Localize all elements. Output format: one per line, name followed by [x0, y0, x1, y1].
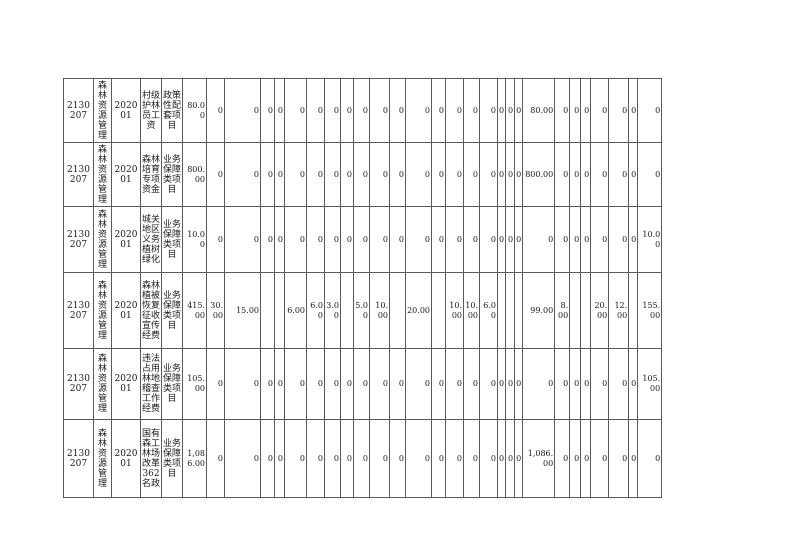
cell-value: 0: [432, 349, 446, 420]
cell-value: 0: [591, 349, 609, 420]
table-row: 2130207 森林资源管理 202001 森林植被恢复征收宣传经费 业务保障类…: [64, 273, 662, 349]
cell-project-name: 森林培育专项资金: [141, 143, 162, 207]
cell-value: 10.00: [183, 207, 207, 273]
cell-value: 3.00: [325, 273, 341, 349]
cell-value: 0: [464, 207, 480, 273]
cell-value: 6.00: [307, 273, 325, 349]
cell-value: 0: [591, 420, 609, 498]
cell-value: 0: [480, 207, 498, 273]
cell-value: 105.00: [638, 349, 662, 420]
cell-value: 0: [629, 420, 638, 498]
cell-value: 0: [581, 143, 591, 207]
cell-value: 0: [285, 207, 307, 273]
cell-value: 0: [341, 420, 354, 498]
cell-value: [261, 273, 275, 349]
cell-project-type: 业务保障类项目: [162, 349, 183, 420]
cell-value: 0: [261, 349, 275, 420]
cell-value: 0: [570, 79, 581, 143]
cell-value: [515, 273, 523, 349]
cell-value: 0: [555, 207, 570, 273]
cell-value: 0: [406, 420, 432, 498]
cell-value: 1,086.00: [183, 420, 207, 498]
cell-value: 0: [464, 79, 480, 143]
cell-value: 8.00: [555, 273, 570, 349]
cell-value: 0: [629, 79, 638, 143]
cell-value: 0: [406, 79, 432, 143]
cell-value: 0: [480, 349, 498, 420]
cell-code: 2130207: [64, 79, 94, 143]
cell-value: 0: [261, 79, 275, 143]
cell-value: 0: [581, 79, 591, 143]
cell-value: 0: [498, 143, 506, 207]
cell-value: 0: [506, 349, 515, 420]
cell-value: 0: [390, 79, 406, 143]
table-body: 2130207 森林资源管理 202001 村级护林员工资 政策性配套项目 80…: [64, 79, 662, 498]
cell-value: 0: [207, 207, 225, 273]
cell-project-name: 森林植被恢复征收宣传经费: [141, 273, 162, 349]
cell-value: 0: [609, 143, 629, 207]
cell-value: 5.00: [354, 273, 370, 349]
cell-value: 0: [207, 420, 225, 498]
cell-year: 202001: [112, 207, 141, 273]
cell-code: 2130207: [64, 273, 94, 349]
cell-value: 0: [225, 420, 261, 498]
table-row: 2130207 森林资源管理 202001 村级护林员工资 政策性配套项目 80…: [64, 79, 662, 143]
table-row: 2130207 森林资源管理 202001 违法占用林地稽查工作经费 业务保障类…: [64, 349, 662, 420]
cell-value: 0: [555, 79, 570, 143]
cell-value: 0: [390, 349, 406, 420]
cell-value: 800.00: [523, 143, 555, 207]
cell-value: 0: [325, 349, 341, 420]
cell-value: 0: [341, 349, 354, 420]
cell-year: 202001: [112, 349, 141, 420]
cell-value: 0: [609, 420, 629, 498]
cell-value: 0: [285, 79, 307, 143]
cell-category: 森林资源管理: [94, 273, 112, 349]
budget-table: 2130207 森林资源管理 202001 村级护林员工资 政策性配套项目 80…: [63, 78, 662, 498]
document-page: 2130207 森林资源管理 202001 村级护林员工资 政策性配套项目 80…: [0, 78, 785, 555]
cell-value: 0: [406, 207, 432, 273]
cell-year: 202001: [112, 273, 141, 349]
cell-project-type: 业务保障类项目: [162, 420, 183, 498]
cell-project-type: 业务保障类项目: [162, 207, 183, 273]
cell-value: 0: [591, 79, 609, 143]
cell-project-name: 违法占用林地稽查工作经费: [141, 349, 162, 420]
cell-value: 0: [432, 143, 446, 207]
cell-value: 0: [591, 143, 609, 207]
cell-value: 0: [591, 207, 609, 273]
cell-project-name: 国有森工林场改革362名政: [141, 420, 162, 498]
cell-value: 0: [506, 420, 515, 498]
cell-value: 0: [570, 420, 581, 498]
cell-value: 0: [446, 143, 464, 207]
cell-value: 20.00: [406, 273, 432, 349]
cell-value: [629, 273, 638, 349]
cell-value: 0: [307, 349, 325, 420]
cell-value: 12.00: [609, 273, 629, 349]
cell-value: 0: [581, 207, 591, 273]
cell-value: 0: [446, 79, 464, 143]
cell-value: 0: [464, 349, 480, 420]
cell-value: 0: [225, 207, 261, 273]
cell-value: 0: [523, 349, 555, 420]
cell-value: 0: [555, 349, 570, 420]
cell-value: 0: [370, 420, 390, 498]
cell-value: 0: [638, 143, 662, 207]
cell-value: 0: [570, 143, 581, 207]
cell-value: 0: [370, 79, 390, 143]
cell-value: 0: [555, 143, 570, 207]
cell-value: 6.00: [480, 273, 498, 349]
cell-code: 2130207: [64, 349, 94, 420]
cell-value: 0: [390, 143, 406, 207]
cell-value: 0: [325, 420, 341, 498]
cell-value: 80.00: [523, 79, 555, 143]
cell-year: 202001: [112, 79, 141, 143]
cell-value: 0: [207, 79, 225, 143]
cell-value: 0: [275, 79, 285, 143]
cell-value: 0: [480, 420, 498, 498]
cell-value: [581, 273, 591, 349]
cell-category: 森林资源管理: [94, 420, 112, 498]
cell-value: 0: [354, 207, 370, 273]
cell-value: 0: [570, 349, 581, 420]
cell-value: 0: [498, 207, 506, 273]
cell-value: 0: [307, 143, 325, 207]
cell-value: 0: [506, 207, 515, 273]
cell-value: [432, 273, 446, 349]
cell-value: 0: [480, 79, 498, 143]
cell-value: 0: [285, 349, 307, 420]
cell-value: 0: [515, 79, 523, 143]
cell-value: 0: [341, 79, 354, 143]
cell-value: 0: [406, 349, 432, 420]
cell-value: [275, 273, 285, 349]
cell-value: 0: [354, 143, 370, 207]
cell-value: [506, 273, 515, 349]
cell-value: [390, 273, 406, 349]
cell-project-type: 业务保障类项目: [162, 143, 183, 207]
cell-value: 0: [498, 420, 506, 498]
cell-value: 30.00: [207, 273, 225, 349]
cell-category: 森林资源管理: [94, 143, 112, 207]
cell-value: 0: [275, 420, 285, 498]
cell-category: 森林资源管理: [94, 349, 112, 420]
cell-value: 0: [464, 420, 480, 498]
cell-value: 0: [307, 207, 325, 273]
cell-value: 0: [307, 79, 325, 143]
cell-value: 0: [638, 79, 662, 143]
cell-value: 0: [225, 79, 261, 143]
cell-code: 2130207: [64, 420, 94, 498]
cell-value: 0: [354, 420, 370, 498]
cell-value: 0: [390, 420, 406, 498]
cell-value: 0: [390, 207, 406, 273]
cell-value: 0: [285, 420, 307, 498]
cell-value: 0: [515, 349, 523, 420]
table-row: 2130207 森林资源管理 202001 城关地区义务植树绿化 业务保障类项目…: [64, 207, 662, 273]
cell-value: 0: [341, 143, 354, 207]
cell-value: 0: [432, 420, 446, 498]
cell-value: 10.00: [370, 273, 390, 349]
cell-value: 0: [498, 79, 506, 143]
cell-value: 0: [609, 349, 629, 420]
cell-year: 202001: [112, 420, 141, 498]
cell-year: 202001: [112, 143, 141, 207]
cell-value: 0: [261, 143, 275, 207]
cell-category: 森林资源管理: [94, 79, 112, 143]
cell-value: 0: [480, 143, 498, 207]
cell-value: 0: [629, 207, 638, 273]
cell-value: 0: [523, 207, 555, 273]
cell-value: 0: [446, 420, 464, 498]
cell-value: 0: [406, 143, 432, 207]
cell-value: 0: [354, 79, 370, 143]
cell-project-name: 城关地区义务植树绿化: [141, 207, 162, 273]
cell-value: 0: [275, 207, 285, 273]
cell-value: 0: [432, 207, 446, 273]
cell-value: 0: [506, 143, 515, 207]
cell-value: 0: [370, 207, 390, 273]
cell-value: 0: [581, 349, 591, 420]
cell-value: 0: [432, 79, 446, 143]
cell-value: 0: [325, 143, 341, 207]
cell-value: 0: [275, 143, 285, 207]
cell-value: [341, 273, 354, 349]
cell-value: [570, 273, 581, 349]
cell-value: 0: [261, 207, 275, 273]
cell-value: 0: [446, 207, 464, 273]
cell-project-type: 业务保障类项目: [162, 273, 183, 349]
cell-value: 6.00: [285, 273, 307, 349]
cell-value: 0: [515, 143, 523, 207]
cell-value: 0: [581, 420, 591, 498]
cell-value: 20.00: [591, 273, 609, 349]
cell-value: 105.00: [183, 349, 207, 420]
cell-value: 0: [285, 143, 307, 207]
cell-value: 0: [629, 349, 638, 420]
table-row: 2130207 森林资源管理 202001 国有森工林场改革362名政 业务保障…: [64, 420, 662, 498]
cell-value: 0: [498, 349, 506, 420]
cell-value: 99.00: [523, 273, 555, 349]
cell-value: 0: [207, 349, 225, 420]
cell-value: 0: [354, 349, 370, 420]
cell-value: 0: [225, 349, 261, 420]
cell-value: 0: [225, 143, 261, 207]
cell-value: 0: [341, 207, 354, 273]
cell-value: 0: [609, 207, 629, 273]
cell-value: 0: [629, 143, 638, 207]
cell-code: 2130207: [64, 143, 94, 207]
cell-value: [498, 273, 506, 349]
cell-value: 0: [638, 420, 662, 498]
cell-value: 15.00: [225, 273, 261, 349]
cell-value: 0: [261, 420, 275, 498]
cell-value: 10.00: [638, 207, 662, 273]
cell-value: 0: [506, 79, 515, 143]
cell-value: 10.00: [464, 273, 480, 349]
cell-value: 0: [275, 349, 285, 420]
cell-value: 0: [370, 143, 390, 207]
cell-value: 80.00: [183, 79, 207, 143]
cell-value: 0: [515, 207, 523, 273]
cell-value: 0: [207, 143, 225, 207]
cell-project-type: 政策性配套项目: [162, 79, 183, 143]
cell-value: 0: [464, 143, 480, 207]
cell-value: 0: [446, 349, 464, 420]
cell-value: 10.00: [446, 273, 464, 349]
cell-code: 2130207: [64, 207, 94, 273]
cell-value: 0: [570, 207, 581, 273]
cell-value: 0: [515, 420, 523, 498]
cell-value: 415.00: [183, 273, 207, 349]
cell-value: 155.00: [638, 273, 662, 349]
cell-value: 1,086.00: [523, 420, 555, 498]
cell-value: 800.00: [183, 143, 207, 207]
cell-project-name: 村级护林员工资: [141, 79, 162, 143]
cell-value: 0: [325, 79, 341, 143]
cell-value: 0: [307, 420, 325, 498]
table-row: 2130207 森林资源管理 202001 森林培育专项资金 业务保障类项目 8…: [64, 143, 662, 207]
cell-value: 0: [370, 349, 390, 420]
cell-category: 森林资源管理: [94, 207, 112, 273]
cell-value: 0: [609, 79, 629, 143]
cell-value: 0: [555, 420, 570, 498]
cell-value: 0: [325, 207, 341, 273]
